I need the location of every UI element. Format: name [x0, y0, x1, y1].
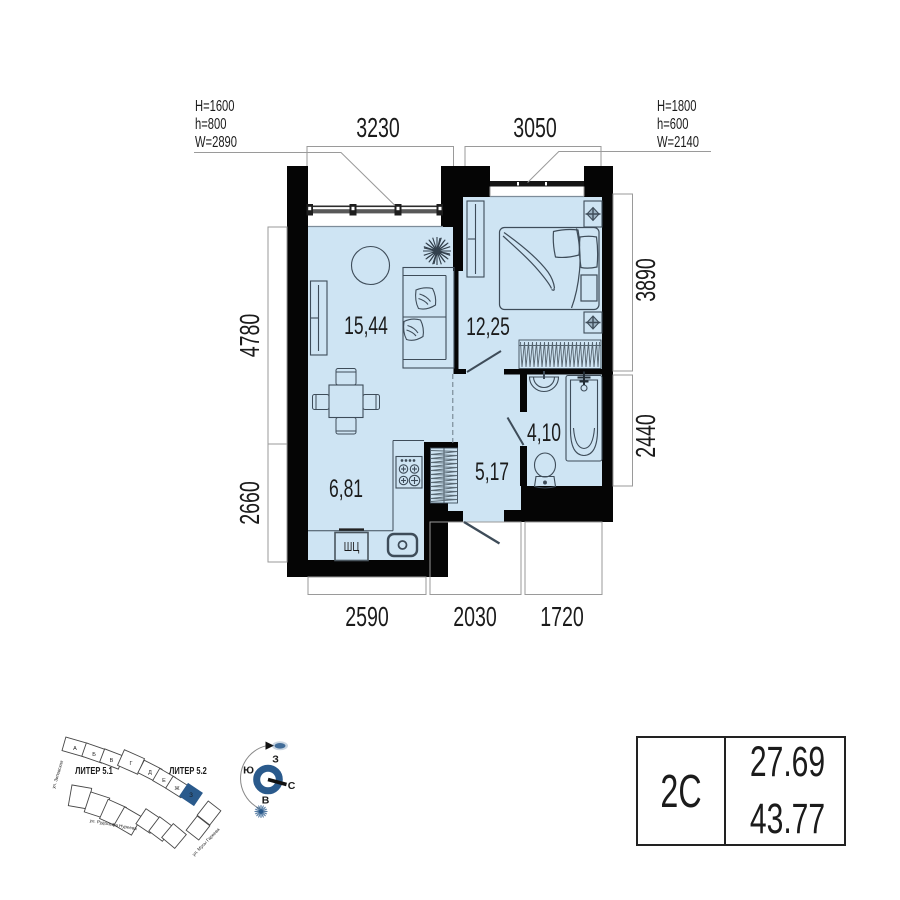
svg-text:W=2890: W=2890 [195, 132, 237, 151]
svg-text:3230: 3230 [356, 113, 400, 144]
svg-text:3050: 3050 [513, 113, 557, 144]
svg-text:ЛИТЕР 5.1: ЛИТЕР 5.1 [75, 765, 113, 776]
svg-text:W=2140: W=2140 [657, 132, 699, 151]
svg-text:В: В [110, 758, 114, 764]
svg-text:2660: 2660 [235, 481, 266, 525]
svg-text:1720: 1720 [540, 602, 584, 633]
svg-text:З: З [189, 793, 193, 799]
svg-text:Ю: Ю [243, 765, 254, 777]
svg-text:Г: Г [130, 761, 133, 767]
svg-text:Б: Б [92, 752, 96, 758]
svg-text:43.77: 43.77 [750, 794, 825, 843]
svg-text:15,44: 15,44 [344, 311, 388, 340]
svg-text:С: С [288, 780, 296, 792]
svg-text:2030: 2030 [453, 602, 497, 633]
svg-text:2440: 2440 [631, 414, 662, 458]
svg-text:5,17: 5,17 [475, 457, 509, 486]
svg-text:Ж: Ж [174, 786, 179, 792]
svg-text:2С: 2С [660, 766, 701, 817]
svg-text:27.69: 27.69 [750, 737, 825, 786]
svg-text:h=600: h=600 [657, 114, 689, 133]
svg-text:h=800: h=800 [195, 114, 227, 133]
svg-text:ШЦ: ШЦ [344, 541, 360, 555]
svg-text:H=1600: H=1600 [195, 96, 235, 115]
svg-text:А: А [73, 746, 77, 752]
svg-text:12,25: 12,25 [466, 312, 510, 341]
svg-text:2590: 2590 [345, 602, 389, 633]
svg-text:Е: Е [162, 778, 166, 784]
svg-text:3890: 3890 [631, 258, 662, 302]
svg-text:З: З [272, 754, 279, 766]
svg-text:4,10: 4,10 [527, 418, 561, 447]
svg-text:ЛИТЕР 5.2: ЛИТЕР 5.2 [169, 765, 207, 776]
svg-text:6,81: 6,81 [329, 474, 363, 503]
svg-text:Д: Д [148, 770, 152, 776]
svg-text:В: В [262, 795, 270, 807]
svg-text:4780: 4780 [235, 314, 266, 358]
svg-text:H=1800: H=1800 [657, 96, 697, 115]
